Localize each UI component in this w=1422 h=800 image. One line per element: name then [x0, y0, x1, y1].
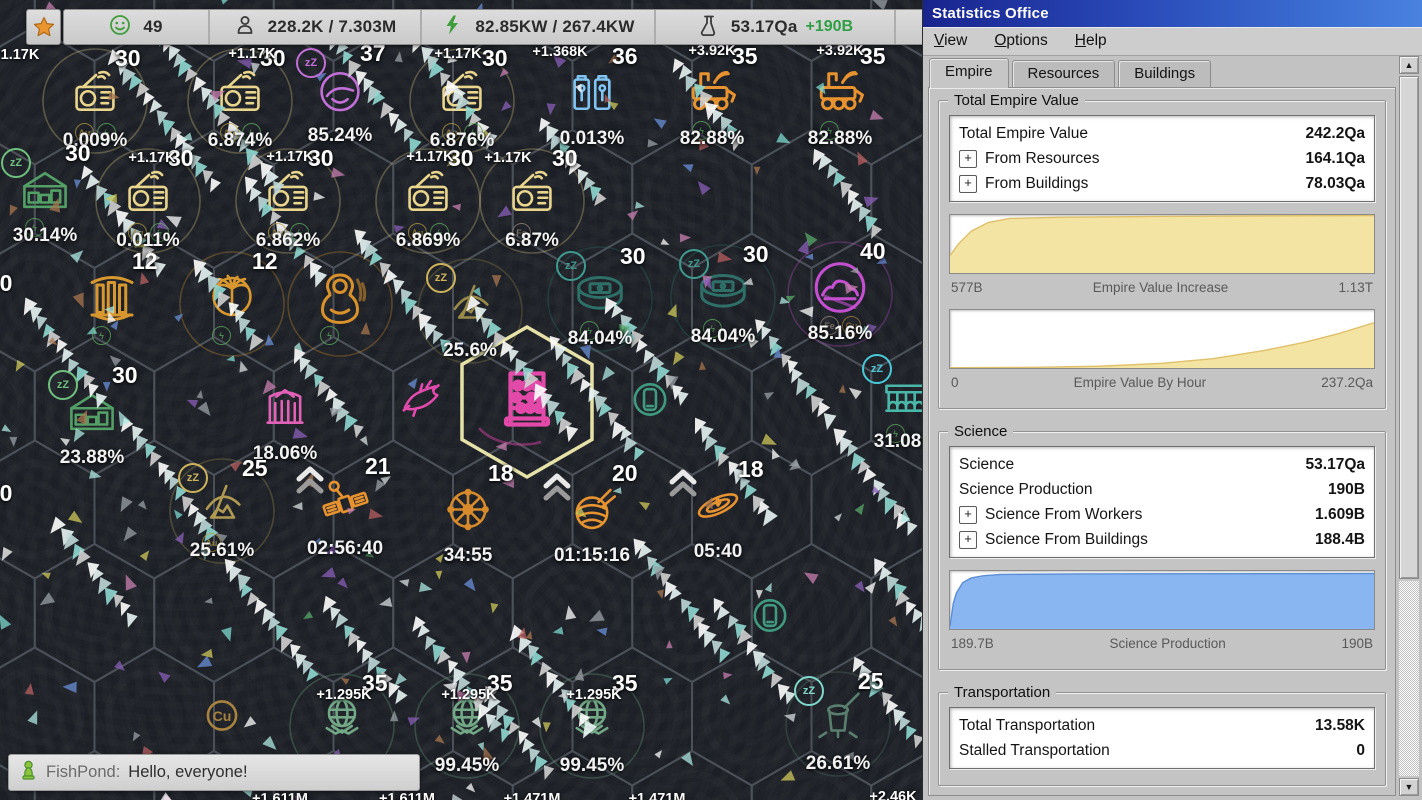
topbar-power[interactable]: 82.85KW / 267.4KW	[420, 10, 654, 44]
stat-label: From Resources	[985, 150, 1306, 168]
topbar-blueprints[interactable]: 24	[894, 10, 922, 44]
stat-row: Science Production190B	[959, 477, 1365, 502]
tab-resources[interactable]: Resources	[1012, 60, 1116, 87]
stat-row: Stalled Transportation0	[959, 738, 1365, 763]
group-science: ScienceScience53.17QaScience Production1…	[938, 431, 1386, 670]
tab-page-empire: Total Empire ValueTotal Empire Value242.…	[928, 87, 1396, 796]
confetti-layer	[0, 0, 922, 800]
stat-label: Science From Buildings	[985, 531, 1315, 549]
menu-help[interactable]: Help	[1075, 32, 1107, 50]
stat-value: 188.4B	[1315, 531, 1365, 549]
power-icon	[441, 14, 463, 41]
player-pawn-icon	[19, 760, 38, 786]
scroll-thumb[interactable]	[1399, 76, 1419, 579]
tab-empire[interactable]: Empire	[929, 58, 1009, 88]
stats-list: Total Transportation13.58KStalled Transp…	[949, 707, 1375, 769]
game-map[interactable]: Cu Auϟ300.009%Auϟ306.874%zZ3785.24%Auϟ30…	[0, 0, 922, 800]
top-stats-segments: 49 228.2K / 7.303M 82.85KW / 267.4KW 53.…	[63, 9, 922, 45]
star-menu-button[interactable]	[26, 9, 61, 45]
chat-bar[interactable]: FishPond: Hello, everyone!	[8, 754, 420, 791]
science-value: 53.17Qa	[731, 17, 798, 37]
stat-label: Science From Workers	[985, 506, 1315, 524]
topbar-population[interactable]: 228.2K / 7.303M	[208, 10, 420, 44]
stat-row: Total Transportation13.58K	[959, 713, 1365, 738]
stat-value: 53.17Qa	[1306, 456, 1365, 474]
stats-list: Total Empire Value242.2Qa+From Resources…	[949, 115, 1375, 202]
group-legend: Transportation	[948, 684, 1056, 701]
topbar-happiness[interactable]: 49	[64, 10, 208, 44]
stat-value: 13.58K	[1315, 717, 1365, 735]
menu-view[interactable]: View	[934, 32, 967, 50]
stat-label: Science	[959, 456, 1306, 474]
panel-scrollbar[interactable]: ▲ ▼	[1399, 56, 1419, 796]
chart-title: Empire Value Increase	[1093, 280, 1229, 295]
stat-value: 164.1Qa	[1306, 150, 1365, 168]
chart-min: 577B	[951, 280, 983, 295]
tab-bar: EmpireResourcesBuildings	[929, 60, 1214, 87]
stat-value: 0	[1356, 742, 1365, 760]
window-titlebar[interactable]: Statistics Office	[923, 0, 1422, 27]
chart-max: 237.2Qa	[1321, 375, 1373, 390]
happiness-value: 49	[143, 17, 162, 37]
expand-button[interactable]: +	[959, 175, 977, 193]
statistics-office-window: Statistics Office ViewOptionsHelp Empire…	[922, 0, 1422, 800]
happiness-icon	[109, 14, 131, 41]
menu-options[interactable]: Options	[994, 32, 1047, 50]
stat-value: 242.2Qa	[1306, 125, 1365, 143]
chart-title: Science Production	[1109, 636, 1225, 651]
group-legend: Total Empire Value	[948, 92, 1085, 109]
stat-value: 1.609B	[1315, 506, 1365, 524]
expand-button[interactable]: +	[959, 531, 977, 549]
stat-row: +From Buildings78.03Qa	[959, 171, 1365, 196]
expand-button[interactable]: +	[959, 506, 977, 524]
stat-row: Science53.17Qa	[959, 452, 1365, 477]
population-icon	[234, 14, 256, 41]
chart-science-production	[949, 570, 1375, 630]
menu-bar: ViewOptionsHelp	[923, 27, 1422, 56]
topbar-science[interactable]: 53.17Qa+190B	[654, 10, 894, 44]
expand-button[interactable]: +	[959, 150, 977, 168]
group-transportation: TransportationTotal Transportation13.58K…	[938, 692, 1386, 786]
chat-message: Hello, everyone!	[128, 763, 247, 782]
chat-player-name: FishPond:	[46, 763, 120, 782]
stat-value: 190B	[1328, 481, 1365, 499]
stat-row: +From Resources164.1Qa	[959, 146, 1365, 171]
scroll-down-button[interactable]: ▼	[1399, 778, 1419, 796]
stats-list: Science53.17QaScience Production190B+Sci…	[949, 446, 1375, 558]
chart-max: 1.13T	[1338, 280, 1373, 295]
population-value: 228.2K / 7.303M	[268, 17, 397, 37]
science-delta: +190B	[806, 18, 854, 36]
chart-min: 189.7B	[951, 636, 994, 651]
stat-row: Total Empire Value242.2Qa	[959, 121, 1365, 146]
group-total-empire-value: Total Empire ValueTotal Empire Value242.…	[938, 100, 1386, 409]
app: Cu Auϟ300.009%Auϟ306.874%zZ3785.24%Auϟ30…	[0, 0, 1422, 800]
chart-empire-value-by-hour	[949, 309, 1375, 369]
chart-max: 190B	[1341, 636, 1373, 651]
star-icon	[32, 15, 56, 39]
group-legend: Science	[948, 423, 1013, 440]
stat-row: +Science From Workers1.609B	[959, 502, 1365, 527]
stat-label: Stalled Transportation	[959, 742, 1356, 760]
power-value: 82.85KW / 267.4KW	[475, 17, 634, 37]
stat-label: Science Production	[959, 481, 1328, 499]
stat-row: +Science From Buildings188.4B	[959, 527, 1365, 552]
chart-min: 0	[951, 375, 959, 390]
chart-empire-value-increase	[949, 214, 1375, 274]
window-title: Statistics Office	[932, 5, 1049, 22]
chart-title: Empire Value By Hour	[1074, 375, 1207, 390]
scroll-track[interactable]	[1399, 581, 1419, 776]
tab-buildings[interactable]: Buildings	[1118, 60, 1211, 87]
stat-label: From Buildings	[985, 175, 1306, 193]
top-stats-bar: 49 228.2K / 7.303M 82.85KW / 267.4KW 53.…	[26, 9, 922, 45]
science-icon	[697, 14, 719, 41]
stat-value: 78.03Qa	[1306, 175, 1365, 193]
stat-label: Total Empire Value	[959, 125, 1306, 143]
scroll-up-button[interactable]: ▲	[1399, 56, 1419, 74]
stat-label: Total Transportation	[959, 717, 1315, 735]
